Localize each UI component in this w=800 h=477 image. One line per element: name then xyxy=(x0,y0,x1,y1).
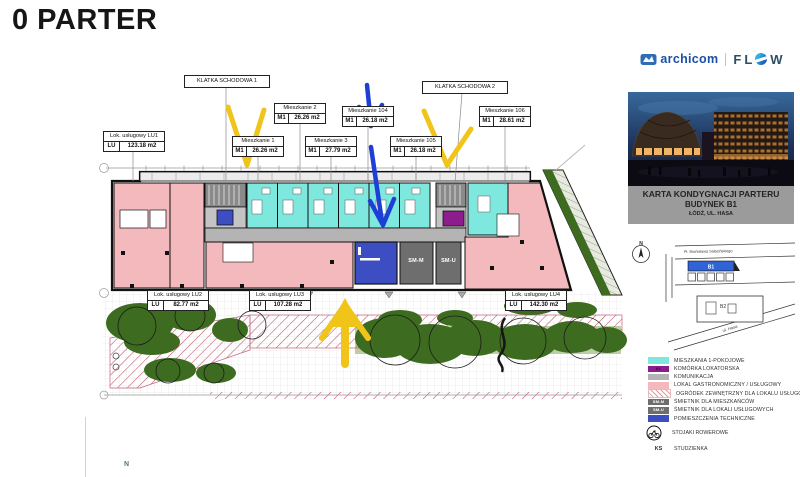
map-b2-label: B2 xyxy=(720,304,726,310)
label-unit-104: Mieszkanie 104 M126.18 m2 xyxy=(342,106,394,127)
site-map-inset: N Pl. Bronisława Sałacińskiego B1 B2 ul.… xyxy=(628,240,795,352)
archicom-wordmark: archicom xyxy=(660,52,718,66)
legend-item-bike-racks: STOJAKI ROWEROWE xyxy=(646,425,728,441)
archicom-logo: archicom xyxy=(640,52,718,66)
card-location: ŁÓDŹ, UL. HASA xyxy=(628,210,794,218)
legend-swatch-service xyxy=(648,382,669,389)
label-unit-1: Mieszkanie 1 M126.26 m2 xyxy=(232,136,284,157)
logo-divider xyxy=(725,53,726,66)
label-service-lu1: Lok. usługowy LU1 LU123.18 m2 xyxy=(103,131,165,152)
logo-row: archicom F L W xyxy=(630,48,793,70)
label-service-lu3: Lok. usługowy LU3 LU107.28 m2 xyxy=(249,290,311,311)
label-staircase-1: KLATKA SCHODOWA 1 xyxy=(184,75,270,88)
legend-item-drain: KS STUDZIENKA xyxy=(648,446,708,452)
page-title: 0 PARTER xyxy=(12,4,157,37)
card-band: KARTA KONDYGNACJI PARTERU BUDYNEK B1 ŁÓD… xyxy=(628,186,794,224)
legend-item-storage: KL KOMÓRKA LOKATORSKA xyxy=(648,365,739,372)
legend-swatch-bins-residents: SM-M xyxy=(648,399,669,406)
legend-swatch-garden xyxy=(648,389,671,398)
card-subtitle: BUDYNEK B1 xyxy=(628,200,794,210)
bike-racks-icon xyxy=(646,425,662,441)
legend-swatch-storage: KL xyxy=(648,366,669,373)
flow-logo: F L W xyxy=(733,52,782,67)
page-edge-line xyxy=(85,417,86,477)
slide: 0 PARTER KLATKA SCHODOWA 1 KLATKA SCHODO… xyxy=(0,0,800,477)
building-render-image xyxy=(628,92,794,186)
legend-item-service: LOKAL GASTRONOMICZNY / USŁUGOWY xyxy=(648,382,781,389)
flow-letter-f: F xyxy=(733,52,741,67)
label-unit-3: Mieszkanie 3 M127.79 m2 xyxy=(305,136,357,157)
map-building-b2 xyxy=(697,296,763,322)
flow-o-swoosh-icon xyxy=(755,53,767,65)
legend-item-bins-residents: SM-M ŚMIETNIK DLA MIESZKAŃCÓW xyxy=(648,399,754,406)
label-service-lu2: Lok. usługowy LU2 LU82.77 m2 xyxy=(147,290,209,311)
drain-symbol: KS xyxy=(648,446,669,452)
label-unit-105: Mieszkanie 105 M126.18 m2 xyxy=(390,136,442,157)
archicom-icon xyxy=(640,53,657,66)
legend-swatch-bins-services: SM-U xyxy=(648,407,669,414)
label-unit-2: Mieszkanie 2 M126.26 m2 xyxy=(274,103,326,124)
legend-item-bins-services: SM-U ŚMIETNIK DLA LOKALI USŁUGOWYCH xyxy=(648,407,774,414)
room-label-smu: SM-U xyxy=(435,258,462,264)
map-street-top: Pl. Bronisława Sałacińskiego xyxy=(684,249,733,254)
card-title: KARTA KONDYGNACJI PARTERU xyxy=(628,189,794,200)
label-unit-106: Mieszkanie 106 M128.61 m2 xyxy=(479,106,531,127)
room-label-smm: SM-M xyxy=(399,258,433,264)
flow-letter-l: L xyxy=(744,52,752,67)
label-service-lu4: Lok. usługowy LU4 LU142.30 m2 xyxy=(505,290,567,311)
flow-letter-w: W xyxy=(770,52,782,67)
legend-item-technical: POMIESZCZENIA TECHNICZNE xyxy=(648,415,755,422)
legend-swatch-circulation xyxy=(648,374,669,381)
map-b1-label: B1 xyxy=(708,265,715,271)
legend-item-circulation: KOMUNIKACJA xyxy=(648,374,713,381)
legend-item-garden: OGRÓDEK ZEWNĘTRZNY DLA LOKALU USŁUGOWEGO xyxy=(648,390,800,397)
legend-swatch-technical xyxy=(648,415,669,422)
map-north: N xyxy=(639,241,643,247)
legend-swatch-apartments xyxy=(648,357,669,364)
label-staircase-2: KLATKA SCHODOWA 2 xyxy=(422,81,508,94)
legend-item-apartments: MIESZKANIA 1-POKOJOWE xyxy=(648,357,745,364)
building xyxy=(112,172,571,298)
north-letter: N xyxy=(124,461,129,468)
